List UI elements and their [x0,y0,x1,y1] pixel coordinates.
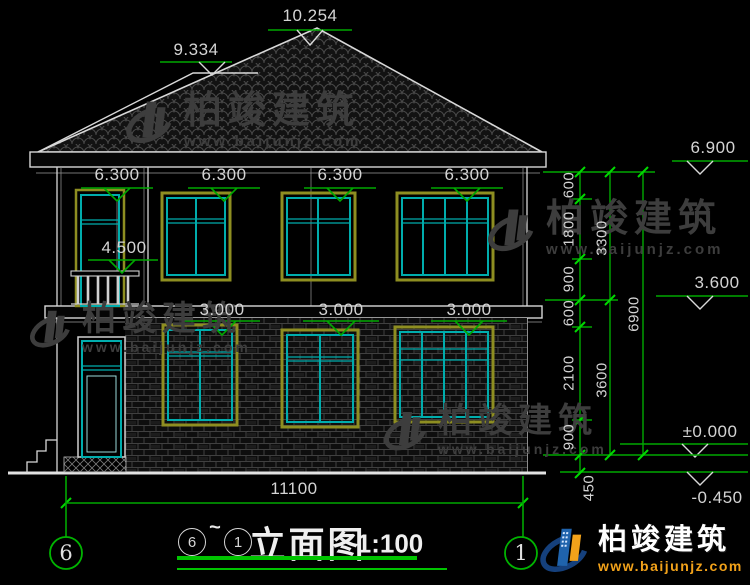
brand-logo-icon [538,522,592,576]
brand-logo: 柏竣建筑 www.baijunjz.com [538,522,743,576]
title-underline-thick [177,556,417,560]
dim-1800: 1800 [561,211,578,246]
dim-600: 600 [561,172,578,199]
watermark-brand: 柏竣建筑 [438,404,607,438]
level-label-3000: 3.000 [446,300,491,320]
elevation-eave: 6.900 [690,138,735,158]
watermark-url: www.baijunjz.com [82,340,251,354]
window-2f-3 [397,193,493,280]
dim-3300: 3300 [594,220,611,255]
brand-name: 柏竣建筑 [598,526,743,555]
watermark-url: www.baijunjz.com [184,134,361,149]
dim-900: 900 [561,266,578,293]
dim-2100: 2100 [561,355,578,390]
watermark-logo-icon [124,95,176,147]
title-tilde: ~ [209,517,221,540]
elevation-linework [0,0,750,585]
watermark-url: www.baijunjz.com [438,442,607,456]
watermark-logo-icon [382,406,430,454]
elevation-site: -0.450 [691,488,742,508]
level-label-4500: 4.500 [101,238,146,258]
dim-total-width: 11100 [270,479,317,499]
level-label-3000: 3.000 [318,300,363,320]
axis-bubble-left: 6 [59,541,72,565]
dim-6900: 6900 [626,296,643,331]
watermark-roof: 柏竣建筑 www.baijunjz.com [124,92,361,149]
level-label-6300: 6.300 [317,165,362,185]
level-label-6300: 6.300 [444,165,489,185]
watermark-brand: 柏竣建筑 [184,92,361,130]
brand-url: www.baijunjz.com [598,559,743,573]
dim-900: 900 [561,424,578,451]
elevation-floor2: 3.600 [694,273,739,293]
watermark-logo-icon [28,305,74,351]
dim-3600: 3600 [594,362,611,397]
drawing-scale: 1:100 [357,529,424,560]
level-label-6300: 6.300 [201,165,246,185]
title-ref-circle-end: 1 [224,528,252,556]
dim-450: 450 [581,475,598,502]
watermark-logo-icon [486,203,538,255]
title-ref-circle-start: 6 [178,528,206,556]
dim-600: 600 [561,300,578,327]
floor2-windows [162,193,493,280]
cad-elevation-drawing: 柏竣建筑 www.baijunjz.com 柏竣建筑 www.baijunjz.… [0,0,750,585]
door-1f [78,337,125,457]
axis-bubble-right: 1 [514,541,527,565]
window-2f-2 [282,193,355,280]
level-label-6300: 6.300 [94,165,139,185]
elevation-ridge-main: 10.254 [283,6,338,26]
title-underline-thin [177,568,447,570]
drawing-title: 立面图 [249,516,366,568]
elevation-ground: ±0.000 [683,422,738,442]
level-label-3000: 3.000 [199,300,244,320]
elevation-ridge-low: 9.334 [173,40,218,60]
window-2f-1 [162,193,230,280]
